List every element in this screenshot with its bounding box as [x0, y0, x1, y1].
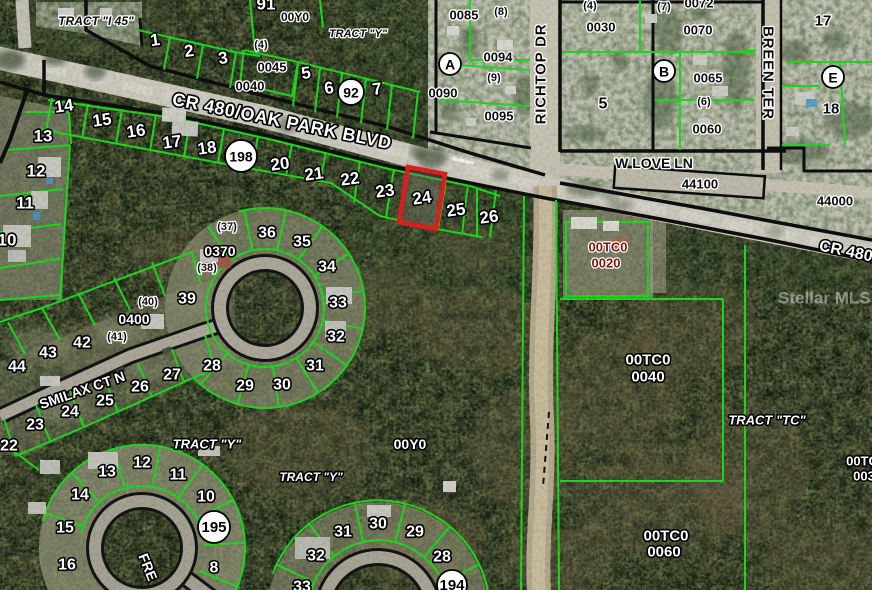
- svg-text:91: 91: [257, 0, 276, 14]
- svg-text:Stellar MLS: Stellar MLS: [778, 289, 871, 308]
- svg-text:003: 003: [853, 469, 872, 484]
- svg-text:0060: 0060: [693, 122, 722, 137]
- svg-text:23: 23: [374, 180, 395, 201]
- svg-text:44100: 44100: [682, 177, 718, 192]
- svg-text:44: 44: [8, 359, 26, 376]
- svg-text:8: 8: [210, 560, 219, 577]
- svg-text:30: 30: [273, 377, 291, 394]
- svg-text:(4): (4): [254, 39, 268, 51]
- svg-text:12: 12: [27, 162, 46, 181]
- svg-text:43: 43: [39, 345, 57, 362]
- svg-text:29: 29: [236, 378, 254, 395]
- svg-text:TRACT "Y": TRACT "Y": [279, 470, 343, 484]
- svg-text:32: 32: [307, 548, 325, 565]
- svg-text:(8): (8): [494, 6, 508, 18]
- svg-text:92: 92: [343, 85, 359, 101]
- svg-text:11: 11: [16, 194, 34, 213]
- svg-text:BREEN TER: BREEN TER: [760, 26, 777, 120]
- svg-text:23: 23: [26, 417, 44, 434]
- svg-text:0045: 0045: [258, 60, 287, 75]
- svg-text:(7): (7): [657, 1, 671, 13]
- svg-text:0094: 0094: [484, 50, 514, 65]
- svg-text:25: 25: [96, 393, 114, 410]
- svg-text:10: 10: [0, 231, 16, 250]
- svg-text:31: 31: [306, 358, 324, 375]
- svg-text:TRACT "I 45": TRACT "I 45": [58, 14, 134, 28]
- svg-text:25: 25: [445, 199, 466, 220]
- svg-text:TRACT "Y": TRACT "Y": [173, 437, 242, 452]
- svg-text:00Y0: 00Y0: [281, 10, 309, 24]
- svg-text:B: B: [659, 64, 669, 80]
- svg-text:24: 24: [411, 187, 433, 209]
- svg-text:5: 5: [599, 96, 608, 113]
- svg-text:12: 12: [133, 455, 151, 472]
- svg-text:0070: 0070: [684, 23, 713, 38]
- svg-text:0065: 0065: [694, 71, 723, 86]
- svg-text:00Y0: 00Y0: [394, 436, 427, 452]
- svg-text:22: 22: [339, 168, 360, 189]
- svg-text:(40): (40): [138, 296, 158, 308]
- svg-text:194: 194: [439, 577, 465, 590]
- svg-text:26: 26: [478, 206, 499, 227]
- svg-text:(38): (38): [197, 262, 217, 274]
- svg-text:35: 35: [293, 234, 311, 251]
- svg-text:26: 26: [131, 379, 149, 396]
- svg-text:RICHTOP DR: RICHTOP DR: [533, 24, 550, 125]
- svg-text:14: 14: [53, 95, 75, 117]
- svg-text:00TC0: 00TC0: [588, 240, 627, 255]
- svg-text:21: 21: [303, 163, 324, 184]
- svg-text:0400: 0400: [118, 311, 149, 327]
- svg-text:W LOVE LN: W LOVE LN: [615, 155, 693, 171]
- svg-text:11: 11: [170, 467, 187, 484]
- svg-text:TRACT "TC": TRACT "TC": [728, 413, 806, 428]
- svg-text:0030: 0030: [587, 20, 616, 35]
- svg-text:20: 20: [269, 153, 290, 174]
- svg-text:0040: 0040: [631, 369, 664, 386]
- svg-text:42: 42: [73, 335, 91, 352]
- svg-text:29: 29: [406, 524, 424, 541]
- svg-text:E: E: [828, 70, 837, 86]
- svg-text:0040: 0040: [236, 79, 265, 94]
- svg-text:00TC0: 00TC0: [625, 352, 670, 369]
- svg-text:0095: 0095: [485, 109, 514, 124]
- svg-text:14: 14: [71, 487, 89, 504]
- svg-text:16: 16: [125, 120, 146, 141]
- svg-text:27: 27: [163, 367, 181, 384]
- svg-text:(4): (4): [583, 0, 597, 12]
- svg-text:A: A: [445, 57, 455, 73]
- svg-text:0060: 0060: [647, 544, 680, 561]
- svg-text:00TC0: 00TC0: [643, 528, 688, 545]
- svg-text:17: 17: [815, 13, 832, 30]
- svg-text:15: 15: [91, 109, 112, 130]
- svg-text:00TC: 00TC: [846, 454, 872, 469]
- svg-text:195: 195: [201, 519, 226, 536]
- svg-text:0090: 0090: [429, 86, 458, 101]
- svg-text:13: 13: [34, 127, 53, 146]
- svg-text:(41): (41): [107, 331, 127, 343]
- svg-text:15: 15: [56, 520, 74, 537]
- svg-text:36: 36: [258, 225, 276, 242]
- svg-text:39: 39: [178, 291, 196, 308]
- svg-text:16: 16: [58, 557, 76, 574]
- svg-text:0370: 0370: [204, 243, 235, 259]
- svg-text:18: 18: [823, 101, 840, 118]
- svg-text:0020: 0020: [592, 256, 621, 271]
- svg-text:198: 198: [229, 149, 253, 165]
- svg-text:24: 24: [61, 404, 79, 421]
- svg-text:18: 18: [196, 137, 217, 158]
- svg-text:34: 34: [318, 259, 336, 276]
- svg-text:(6): (6): [697, 96, 711, 108]
- svg-text:28: 28: [203, 358, 221, 375]
- svg-text:0072: 0072: [685, 0, 714, 11]
- svg-text:TRACT "Y": TRACT "Y": [329, 28, 388, 40]
- svg-text:17: 17: [161, 131, 182, 152]
- svg-text:(37): (37): [217, 221, 237, 233]
- svg-text:30: 30: [369, 516, 387, 533]
- svg-text:(9): (9): [487, 72, 501, 84]
- svg-text:31: 31: [334, 524, 352, 541]
- svg-text:22: 22: [0, 438, 18, 455]
- svg-text:0085: 0085: [450, 8, 479, 23]
- svg-text:44000: 44000: [817, 194, 853, 209]
- svg-text:32: 32: [327, 329, 345, 346]
- svg-text:33: 33: [293, 579, 311, 590]
- svg-text:13: 13: [98, 464, 116, 481]
- svg-text:28: 28: [433, 549, 451, 566]
- svg-text:33: 33: [329, 295, 347, 312]
- svg-text:10: 10: [197, 489, 215, 506]
